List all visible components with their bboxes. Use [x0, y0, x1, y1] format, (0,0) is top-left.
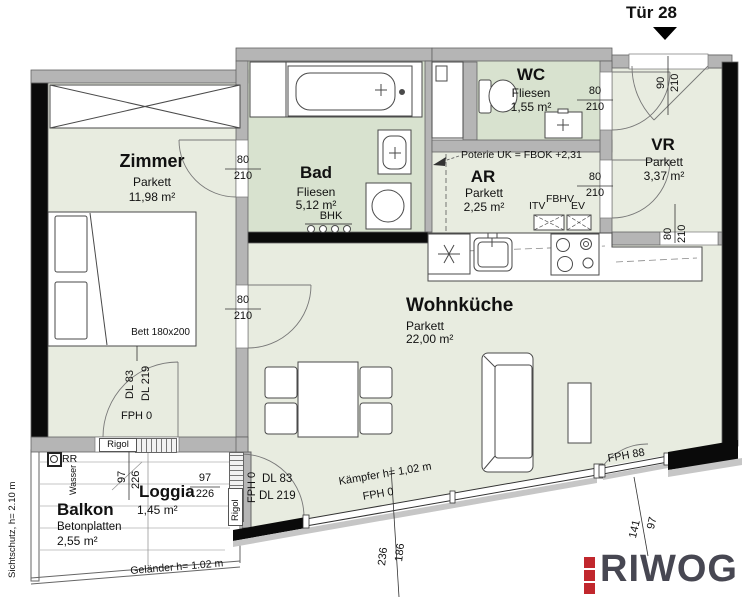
fph0-zimmer-label: FPH 0 [121, 411, 152, 423]
dim-loggia-width: 97 [188, 473, 222, 485]
fridge [428, 234, 470, 274]
dim-vr-door-width: 80 [663, 228, 675, 240]
rigol-label-vertical: Rigol [231, 499, 241, 521]
shaft [432, 62, 463, 138]
room-zimmer-area: 11,98 m² [107, 191, 197, 204]
rigol-channel-horizontal [135, 438, 177, 453]
dim-vr-door-height: 210 [677, 225, 689, 243]
dim-hall-door-width: 80 [225, 295, 261, 307]
bathtub [250, 62, 422, 117]
logo-accent-square [584, 583, 595, 594]
room-loggia-area: 1,45 m² [137, 504, 178, 517]
room-balkon-name: Balkon [57, 501, 114, 519]
dim-zimmer-door-height: 210 [224, 171, 262, 183]
kitchen-sink [474, 233, 512, 271]
dim-balkon-depth: 226 [131, 471, 143, 489]
room-vr-floor: Parkett [640, 156, 688, 169]
bed-size-label: Bett 180x200 [96, 328, 190, 339]
sichtschutz-label: Sichtschutz, h= 2.10 m [8, 482, 18, 578]
electrical-cabinets [534, 215, 591, 230]
wardrobe [50, 85, 240, 128]
room-bad-name: Bad [286, 164, 346, 182]
dim-window-236: 236 [377, 547, 391, 567]
dim-wc-door-width: 80 [577, 86, 613, 98]
room-bad-floor: Fliesen [286, 186, 346, 199]
room-wohnkueche-name: Wohnküche [406, 296, 513, 317]
room-zimmer-floor: Parkett [107, 176, 197, 189]
entrance-arrow-icon [653, 27, 677, 40]
room-balkon-floor: Betonplatten [57, 521, 122, 533]
dim-entrance-width: 90 [656, 77, 668, 89]
floorplan: Tür 28 Zimmer Parkett 11,98 m² Bad Flies… [0, 0, 744, 600]
dim-zimmer-door-width: 80 [225, 155, 261, 167]
dim-wc-door-height: 210 [576, 102, 614, 114]
dl83-zimmer-label: DL 83 [125, 370, 137, 399]
room-balkon-area: 2,55 m² [57, 535, 98, 548]
rr-label: RR [62, 454, 77, 465]
room-wohnkueche-area: 22,00 m² [406, 333, 453, 346]
coffee-table [568, 383, 591, 443]
sofa [482, 353, 533, 472]
room-ar-name: AR [461, 168, 505, 186]
dim-entrance-height: 210 [670, 74, 682, 92]
ev-label: EV [571, 201, 585, 212]
dim-ar-door-width: 80 [577, 172, 613, 184]
dl219-zimmer-label: DL 219 [141, 366, 153, 401]
room-ar-floor: Parkett [460, 187, 508, 200]
room-wohnkueche-floor: Parkett [406, 320, 444, 333]
dim-loggia-depth: 226 [186, 489, 224, 501]
dim-hall-door-height: 210 [224, 311, 262, 323]
rainwater-pipe-dot-icon [50, 455, 58, 463]
room-zimmer-name: Zimmer [107, 152, 197, 171]
room-wc-name: WC [506, 66, 556, 84]
dl219-wohnkueche-label: DL 219 [259, 490, 296, 502]
itv-label: ITV [529, 201, 545, 212]
poterie-note: Poterie UK = FBOK +2,31 [461, 150, 582, 161]
cooktop [551, 234, 599, 275]
dim-window-186: 186 [394, 543, 408, 563]
bhk-label: BHK [311, 211, 351, 223]
room-vr-area: 3,37 m² [640, 170, 688, 183]
dim-ar-door-height: 210 [576, 188, 614, 200]
room-wc-area: 1,55 m² [504, 101, 558, 114]
wasser-label: Wasser [69, 465, 79, 495]
bathroom-sink [378, 130, 411, 174]
room-ar-area: 2,25 m² [460, 201, 508, 214]
entrance-door-label: Tür 28 [626, 4, 677, 22]
washing-machine [366, 183, 411, 229]
logo-text: RIWOG [600, 548, 738, 591]
rigol-label-horizontal: Rigol [99, 438, 137, 452]
dl83-wohnkueche-label: DL 83 [262, 473, 292, 485]
logo-accent-square [584, 570, 595, 581]
fph0-loggia-door-label: FPH 0 [247, 472, 259, 503]
fbhv-label: FBHV [546, 194, 574, 205]
room-vr-name: VR [641, 136, 685, 154]
logo-accent-square [584, 557, 595, 568]
room-wc-floor: Fliesen [506, 87, 556, 100]
dim-balkon-width: 97 [117, 471, 129, 483]
